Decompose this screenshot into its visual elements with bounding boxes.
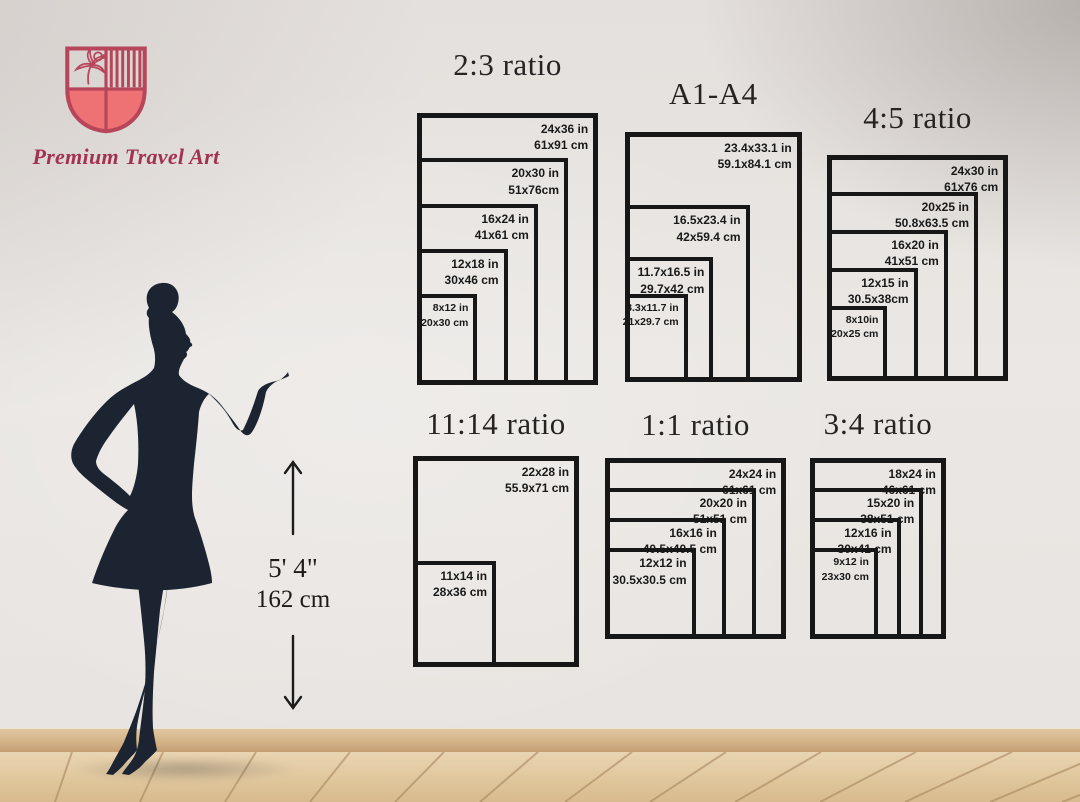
size-inches: 16x16 in xyxy=(643,525,717,541)
nested-size-boxes: 23.4x33.1 in59.1x84.1 cm16.5x23.4 in42x5… xyxy=(625,132,802,382)
size-inches: 20x25 in xyxy=(895,199,969,215)
size-inches: 8x10in xyxy=(831,313,878,327)
size-cm: 42x59.4 cm xyxy=(673,229,740,245)
nested-size-boxes: 24x30 in61x76 cm20x25 in50.8x63.5 cm16x2… xyxy=(827,155,1008,382)
size-cm: 30x46 cm xyxy=(445,272,499,288)
brand-name: Premium Travel Art xyxy=(26,144,226,170)
size-inches: 24x36 in xyxy=(534,121,588,137)
size-inches: 8x12 in xyxy=(421,301,468,315)
size-label: 16x20 in41x51 cm xyxy=(885,237,939,269)
crest-shield-icon xyxy=(62,42,150,136)
nested-size-boxes: 24x24 in61x61 cm20x20 in51x51 cm16x16 in… xyxy=(605,458,786,639)
size-inches: 16.5x23.4 in xyxy=(673,212,740,228)
size-label: 23.4x33.1 in59.1x84.1 cm xyxy=(718,140,792,172)
chart-title: 3:4 ratio xyxy=(770,406,986,442)
size-inches: 11.7x16.5 in xyxy=(638,264,705,280)
size-label: 12x15 in30.5x38cm xyxy=(848,275,909,307)
size-inches: 15x20 in xyxy=(860,495,914,511)
size-chart-1-1: 1:1 ratio24x24 in61x61 cm20x20 in51x51 c… xyxy=(605,458,786,639)
size-label: 22x28 in55.9x71 cm xyxy=(505,464,569,496)
size-cm: 20x25 cm xyxy=(831,327,878,341)
size-label: 24x30 in61x76 cm xyxy=(944,163,998,195)
size-label: 12x18 in30x46 cm xyxy=(445,256,499,288)
size-box-8x10in: 8x10in20x25 cm xyxy=(827,306,887,382)
size-label: 8x10in20x25 cm xyxy=(831,313,878,341)
size-chart-4-5: 4:5 ratio24x30 in61x76 cm20x25 in50.8x63… xyxy=(827,155,1008,382)
size-label: 20x30 in51x76cm xyxy=(508,165,559,197)
size-label: 24x36 in61x91 cm xyxy=(534,121,588,153)
size-cm: 30.5x30.5 cm xyxy=(613,572,687,588)
size-label: 11x14 in28x36 cm xyxy=(433,568,487,600)
size-inches: 20x20 in xyxy=(693,495,747,511)
poster-size-guide: Premium Travel Art 2:3 ratio24x36 in61x9… xyxy=(0,0,1080,802)
size-inches: 16x20 in xyxy=(885,237,939,253)
size-box-11x14in: 11x14 in28x36 cm xyxy=(413,561,496,667)
size-inches: 24x24 in xyxy=(722,466,776,482)
size-chart-11-14: 11:14 ratio22x28 in55.9x71 cm11x14 in28x… xyxy=(413,456,579,667)
size-cm: 20x30 cm xyxy=(421,316,468,330)
size-chart-a1-a4: A1-A423.4x33.1 in59.1x84.1 cm16.5x23.4 i… xyxy=(625,132,802,382)
size-inches: 24x30 in xyxy=(944,163,998,179)
size-chart-3-4: 3:4 ratio18x24 in46x61 cm15x20 in38x51 c… xyxy=(810,458,946,639)
size-cm: 28x36 cm xyxy=(433,584,487,600)
size-cm: 41x61 cm xyxy=(475,227,529,243)
nested-size-boxes: 18x24 in46x61 cm15x20 in38x51 cm12x16 in… xyxy=(810,458,946,639)
size-inches: 12x15 in xyxy=(848,275,909,291)
size-inches: 12x18 in xyxy=(445,256,499,272)
size-inches: 22x28 in xyxy=(505,464,569,480)
size-label: 16.5x23.4 in42x59.4 cm xyxy=(673,212,740,244)
size-inches: 20x30 in xyxy=(508,165,559,181)
size-box-8.3x11.7in: 8.3x11.7 in21x29.7 cm xyxy=(625,294,688,382)
size-cm: 55.9x71 cm xyxy=(505,480,569,496)
size-cm: 21x29.7 cm xyxy=(623,315,679,329)
size-inches: 18x24 in xyxy=(882,466,936,482)
size-label: 12x12 in30.5x30.5 cm xyxy=(613,555,687,587)
size-inches: 23.4x33.1 in xyxy=(718,140,792,156)
size-box-8x12in: 8x12 in20x30 cm xyxy=(417,294,477,385)
size-label: 11.7x16.5 in29.7x42 cm xyxy=(638,264,705,296)
size-inches: 16x24 in xyxy=(475,211,529,227)
size-chart-2-3: 2:3 ratio24x36 in61x91 cm20x30 in51x76cm… xyxy=(417,113,598,385)
size-label: 8x12 in20x30 cm xyxy=(421,301,468,329)
size-cm: 61x91 cm xyxy=(534,137,588,153)
size-inches: 11x14 in xyxy=(433,568,487,584)
size-label: 8.3x11.7 in21x29.7 cm xyxy=(623,301,679,329)
size-label: 9x12 in23x30 cm xyxy=(822,555,869,583)
size-box-9x12in: 9x12 in23x30 cm xyxy=(810,548,878,639)
size-label: 16x24 in41x61 cm xyxy=(475,211,529,243)
nested-size-boxes: 22x28 in55.9x71 cm11x14 in28x36 cm xyxy=(413,456,579,667)
size-cm: 51x76cm xyxy=(508,182,559,198)
size-box-12x12in: 12x12 in30.5x30.5 cm xyxy=(605,548,696,639)
size-inches: 9x12 in xyxy=(822,555,869,569)
woman-silhouette xyxy=(50,280,290,780)
size-cm: 23x30 cm xyxy=(822,570,869,584)
palm-bird-emblem xyxy=(76,49,106,83)
brand-logo: Premium Travel Art xyxy=(26,40,226,180)
size-inches: 8.3x11.7 in xyxy=(623,301,679,315)
size-cm: 59.1x84.1 cm xyxy=(718,156,792,172)
size-inches: 12x12 in xyxy=(613,555,687,571)
size-label: 20x25 in50.8x63.5 cm xyxy=(895,199,969,231)
chart-title: 4:5 ratio xyxy=(787,100,1048,136)
size-inches: 12x16 in xyxy=(838,525,892,541)
nested-size-boxes: 24x36 in61x91 cm20x30 in51x76cm16x24 in4… xyxy=(417,113,598,385)
